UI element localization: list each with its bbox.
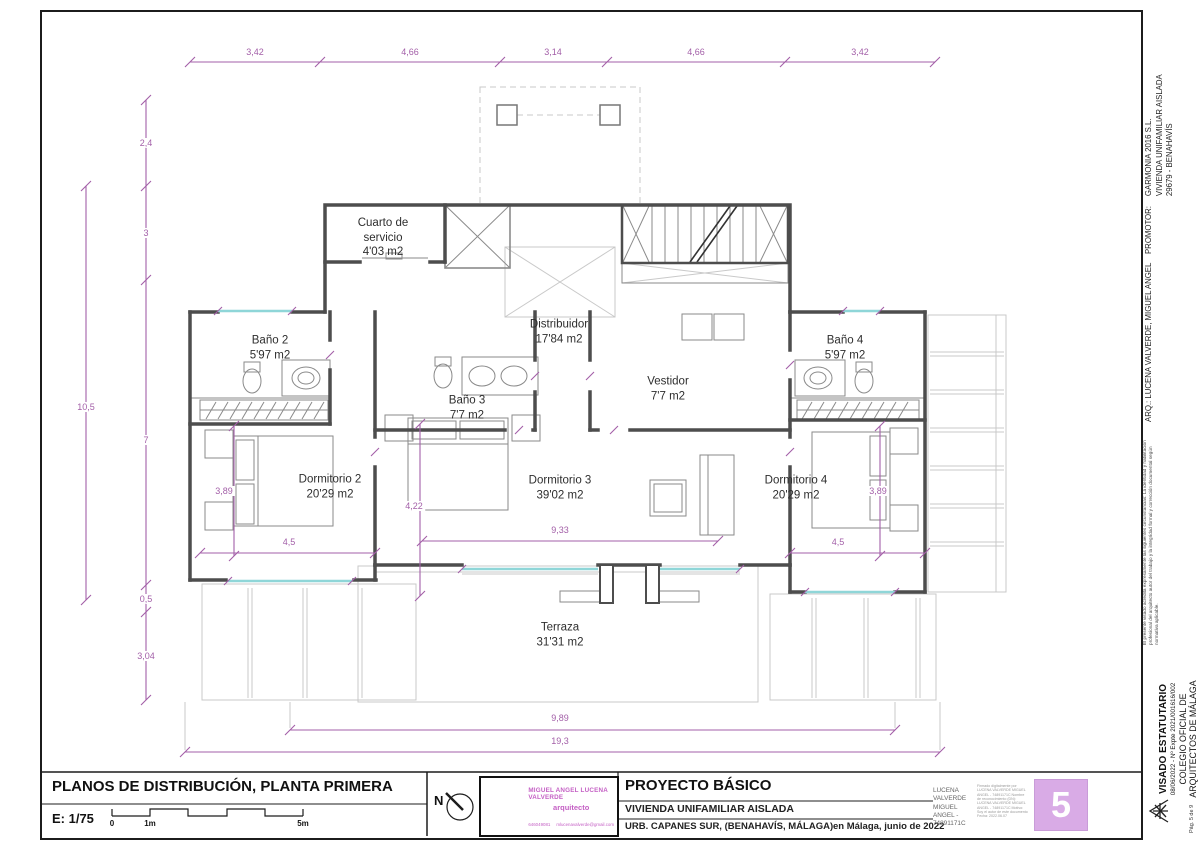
project-subtitle: VIVIENDA UNIFAMILIAR AISLADA: [625, 803, 794, 815]
dim-dorm2-width: 4,5: [283, 537, 296, 547]
architect-stamp-logo-area: [481, 778, 528, 835]
dim-left-1: 2,4: [138, 138, 155, 148]
architect-phone: 646049081: [528, 822, 550, 827]
colegio-line1: COLEGIO OFICIAL DE: [1178, 645, 1188, 833]
dim-dorm4-height: 3,89: [867, 486, 889, 496]
sheet-number: 5: [1051, 784, 1071, 826]
sheet-scale: E: 1/75: [52, 811, 94, 826]
room-label-dormitorio4: Dormitorio 4 20'29 m2: [765, 473, 828, 502]
sheet-number-badge: 5: [1034, 779, 1088, 831]
room-label-vestidor: Vestidor 7'7 m2: [647, 374, 689, 403]
dim-top-1: 3,42: [246, 47, 264, 57]
north-arrow-label: N: [434, 793, 443, 808]
dim-left-4: 0,5: [138, 594, 155, 604]
walls: [190, 205, 925, 603]
dim-top-5: 3,42: [851, 47, 869, 57]
visado-fine-print: El presente visado acredita expresamente…: [1142, 427, 1160, 645]
signature-name: LUCENA VALVERDE MIGUEL ANGEL - 74891171C: [933, 787, 977, 829]
sidebar-promotor-block: GARMONIA 2016 S.L. VIVIENDA UNIFAMILIAR …: [1144, 74, 1176, 196]
furniture-and-fixtures: [190, 205, 925, 602]
dim-dorm3-left: 4,22: [403, 501, 425, 511]
sidebar-architect-info: ARQ.: LUCENA VALVERDE, MIGUEL ANGEL PROM…: [1144, 15, 1176, 422]
visado-title: VISADO ESTATUTARIO: [1158, 645, 1169, 833]
architect-role: arquitecto: [553, 803, 589, 812]
dim-left-outer: 10,5: [75, 402, 97, 412]
room-label-bano2: Baño 2 5'97 m2: [250, 333, 291, 362]
room-label-terraza: Terraza 31'31 m2: [537, 620, 584, 649]
room-label-distribuidor: Distribuidor 17'84 m2: [530, 317, 588, 346]
project-location: URB. CAPANES SUR, (BENAHAVÍS, MÁLAGA): [625, 821, 833, 832]
visado-ref: 08/06/2022 - Nº Expte 2021/001616/002: [1170, 645, 1177, 833]
dim-dorm2-height: 3,89: [213, 486, 235, 496]
room-label-bano3: Baño 3 7'7 m2: [449, 393, 485, 422]
room-label-bano4: Baño 4 5'97 m2: [825, 333, 866, 362]
dim-top-2: 4,66: [401, 47, 419, 57]
dim-top-4: 4,66: [687, 47, 705, 57]
dim-bottom-2: 19,3: [551, 736, 569, 746]
room-label-dormitorio3: Dormitorio 3 39'02 m2: [529, 473, 592, 502]
dim-left-2: 3: [141, 228, 150, 238]
project-date: en Málaga, junio de 2022: [833, 821, 944, 832]
dim-dorm3-width: 9,33: [549, 525, 571, 535]
scalebar-zero: 0: [110, 819, 114, 828]
sheet-title: PLANOS DE DISTRIBUCIÓN, PLANTA PRIMERA: [52, 778, 393, 795]
digital-signature-note: Firmado digitalmente por LUCENA VALVERDE…: [977, 784, 1029, 832]
drawing-sheet: Cuarto de servicio 4'03 m2 Distribuidor …: [0, 0, 1200, 848]
dim-top-3: 3,14: [544, 47, 562, 57]
architect-stamp: MIGUEL ANGEL LUCENA VALVERDE arquitecto …: [479, 776, 619, 837]
architect-email: mlucenavalverde@gmail.com: [556, 822, 614, 827]
scalebar-5m: 5m: [297, 819, 309, 828]
dim-left-3: 7: [141, 435, 150, 445]
dim-dorm4-width: 4,5: [832, 537, 845, 547]
sidebar-arq: ARQ.: LUCENA VALVERDE, MIGUEL ANGEL PROM…: [1144, 206, 1176, 422]
page-count: Pág. 5 de 9: [1189, 773, 1195, 833]
dim-bottom-1: 9,89: [551, 713, 569, 723]
room-label-cuarto-servicio: Cuarto de servicio 4'03 m2: [340, 216, 426, 260]
room-label-dormitorio2: Dormitorio 2 20'29 m2: [299, 472, 362, 501]
floor-plan-drawing: [0, 0, 1200, 848]
project-type: PROYECTO BÁSICO: [625, 777, 771, 794]
dimension-lines: [81, 57, 945, 757]
architect-name: MIGUEL ANGEL LUCENA VALVERDE: [528, 787, 614, 801]
scalebar-1m: 1m: [144, 819, 156, 828]
dim-left-5: 3,04: [135, 651, 157, 661]
